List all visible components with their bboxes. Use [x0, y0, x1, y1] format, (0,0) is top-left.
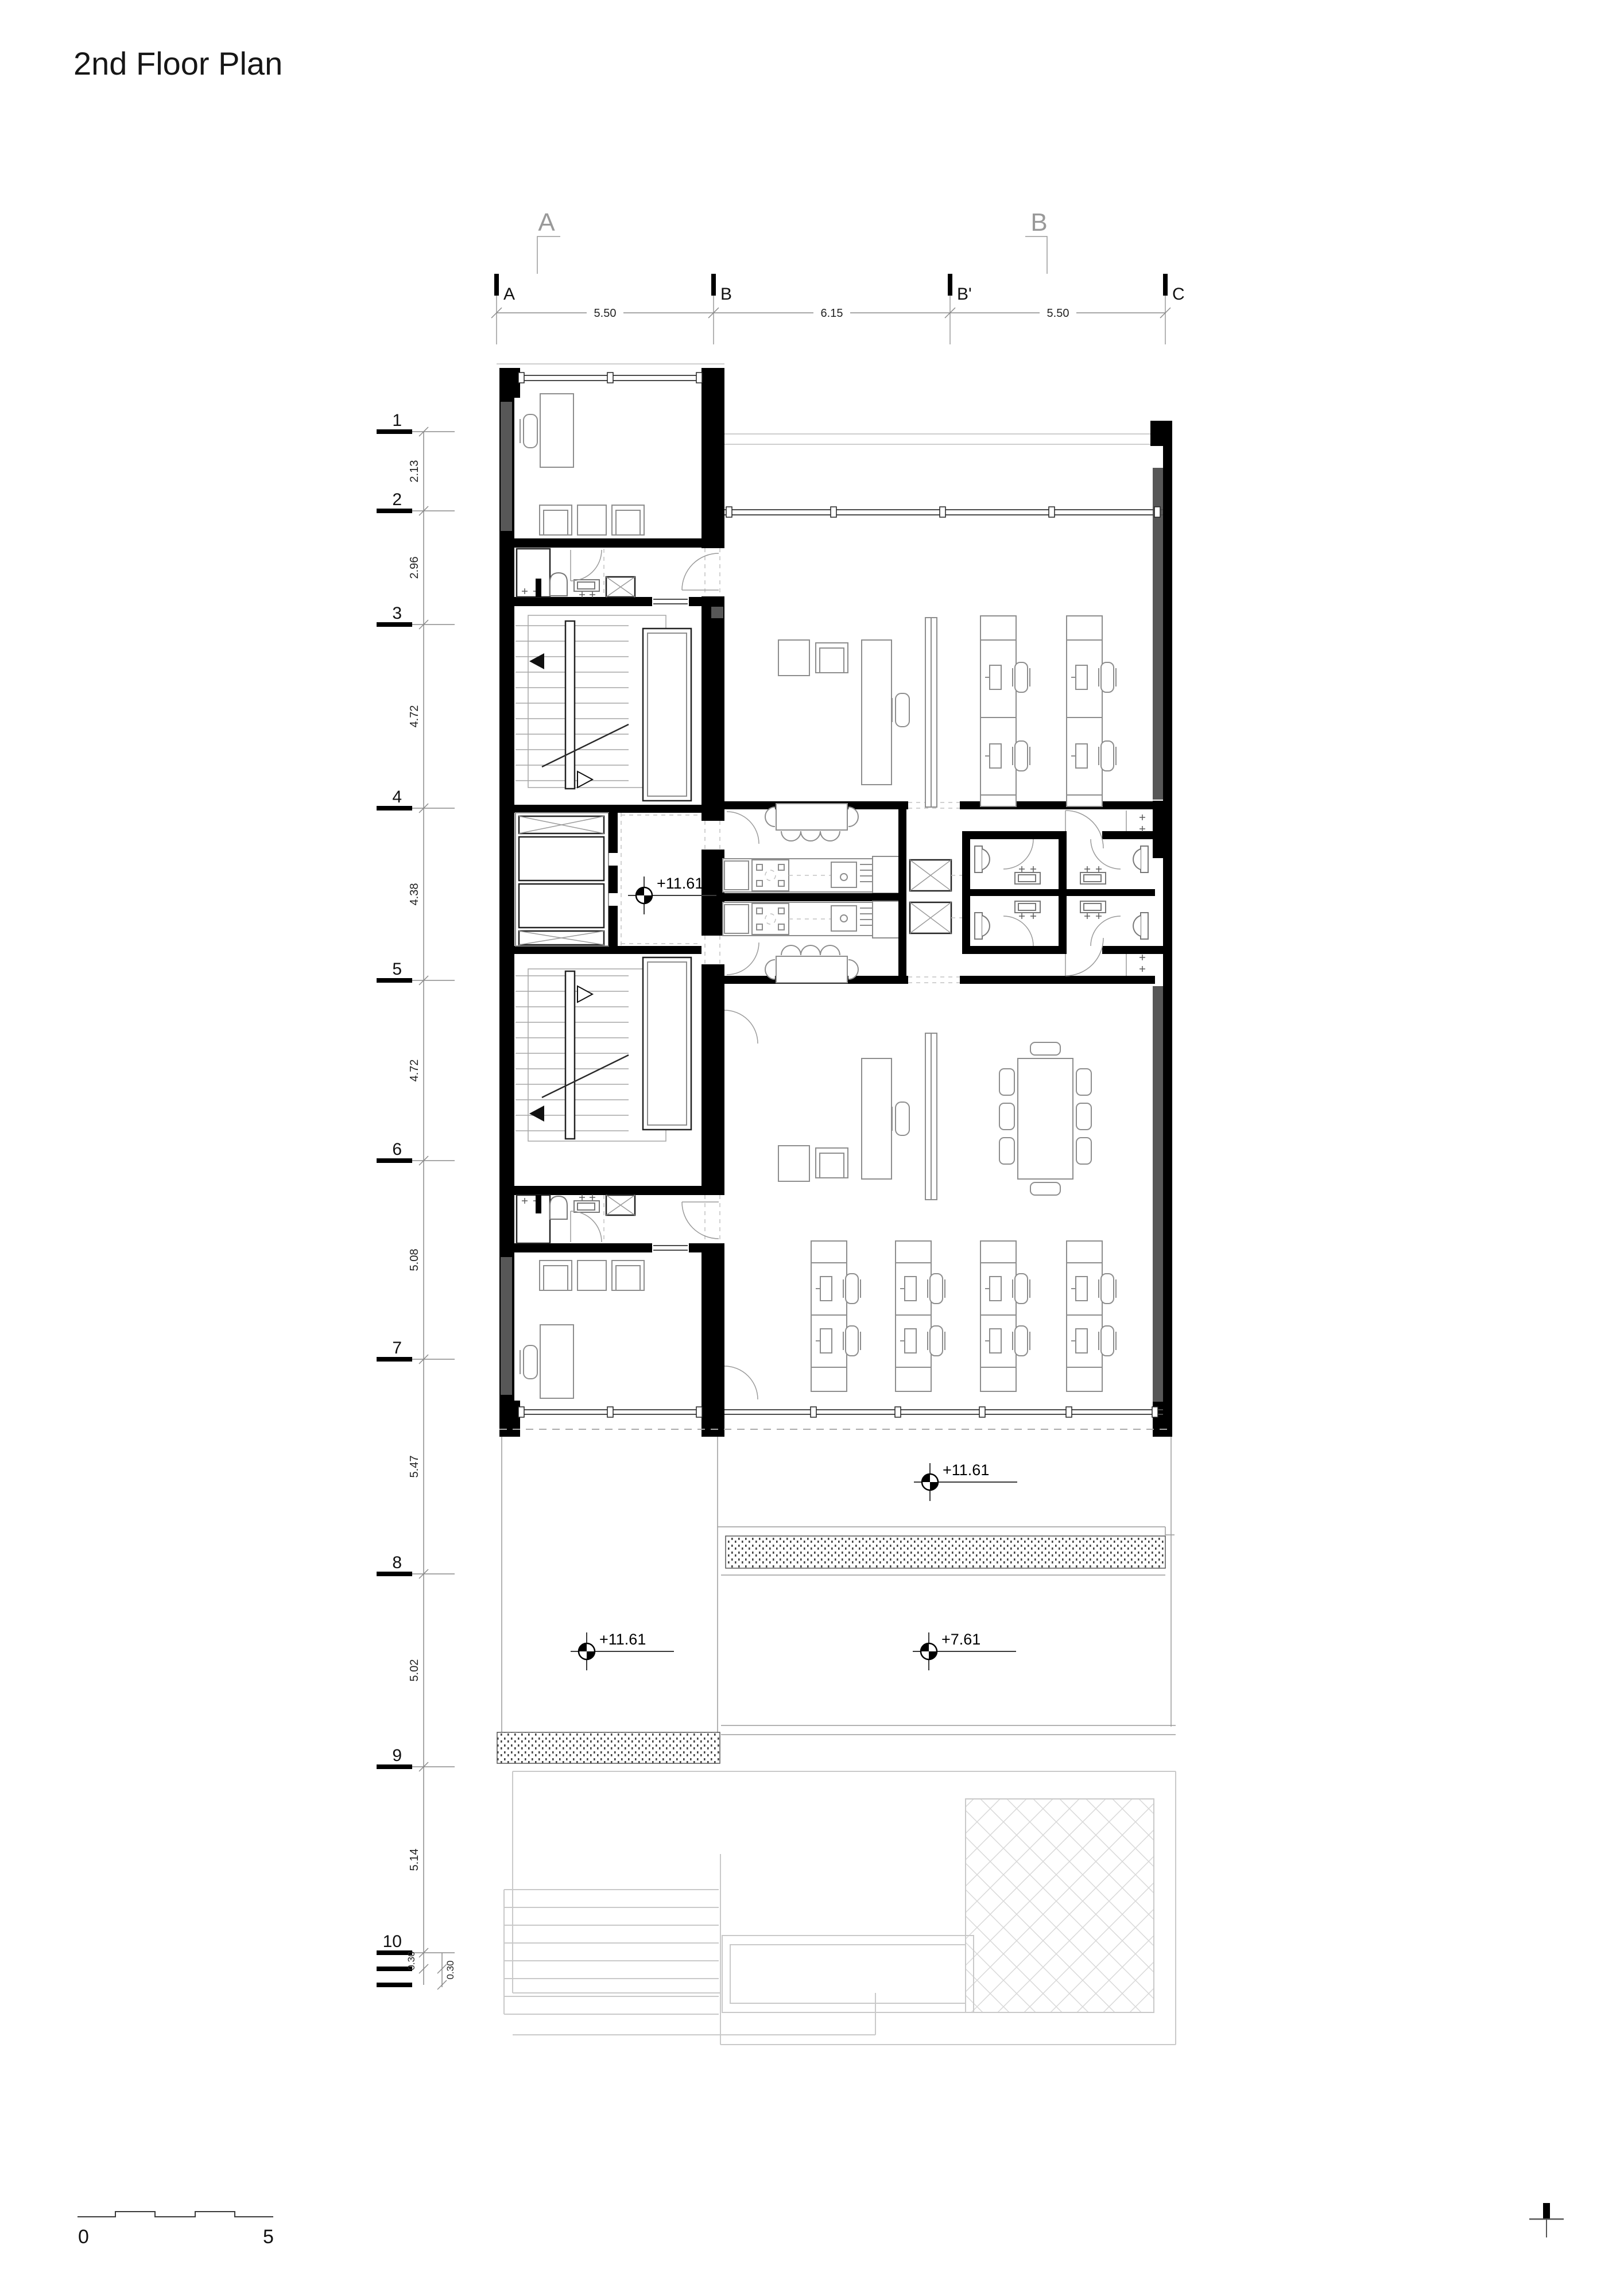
section-marker-b-label: B [1030, 208, 1047, 236]
level-terrace-left: +11.61 [599, 1631, 646, 1648]
svg-text:7: 7 [392, 1339, 402, 1358]
dim-10b: 0.30 [445, 1960, 456, 1979]
dim-b-bp: 6.15 [821, 307, 843, 320]
dim-2-3: 2.96 [408, 557, 421, 579]
dim-8-9: 5.02 [408, 1659, 421, 1682]
svg-text:4: 4 [392, 788, 402, 806]
dim-7-8: 5.47 [408, 1456, 421, 1478]
level-core: +11.61 [657, 875, 703, 892]
dim-bp-c: 5.50 [1047, 307, 1069, 320]
dim-10a: 0.30 [406, 1951, 417, 1970]
grid-col-a: A [503, 285, 515, 304]
drawing-sheet: 2nd Floor Plan A B A B B' C 5.50 6.15 5.… [0, 0, 1624, 2296]
roof-hatch-strip-left [497, 1732, 720, 1763]
grid-col-c: C [1172, 285, 1185, 304]
grid-col-bp: B' [957, 285, 972, 304]
bathroom-block [962, 810, 1163, 976]
svg-text:5: 5 [392, 960, 402, 979]
roof-hatch-strip-right [726, 1536, 1165, 1568]
dim-1-2: 2.13 [408, 460, 421, 483]
dim-3-4: 4.72 [408, 705, 421, 728]
dim-6-7: 5.08 [408, 1249, 421, 1271]
level-terrace-upper: +11.61 [943, 1461, 989, 1479]
scale-end: 5 [263, 2226, 274, 2248]
section-marker-a-label: A [538, 208, 555, 236]
svg-text:3: 3 [392, 604, 402, 623]
svg-text:2: 2 [392, 490, 402, 509]
dim-4-5: 4.38 [408, 883, 421, 906]
stairwell-2 [516, 954, 691, 1186]
ground-hatch-area [966, 1799, 1154, 2012]
svg-text:9: 9 [392, 1746, 402, 1765]
sheet-background [0, 0, 1624, 2296]
dim-a-b: 5.50 [594, 307, 617, 320]
stairwell-1 [516, 606, 691, 805]
grid-col-b: B [720, 285, 732, 304]
scale-start: 0 [78, 2226, 89, 2248]
dim-9-10: 5.14 [408, 1849, 421, 1871]
floor-plan-drawing: 2nd Floor Plan A B A B B' C 5.50 6.15 5.… [0, 0, 1624, 2296]
svg-text:6: 6 [392, 1140, 402, 1159]
svg-text:1: 1 [392, 411, 402, 430]
svg-text:10: 10 [383, 1932, 402, 1951]
dim-5-6: 4.72 [408, 1060, 421, 1082]
page-title: 2nd Floor Plan [73, 45, 282, 82]
level-roof-lower: +7.61 [941, 1631, 980, 1648]
svg-text:8: 8 [392, 1553, 402, 1572]
